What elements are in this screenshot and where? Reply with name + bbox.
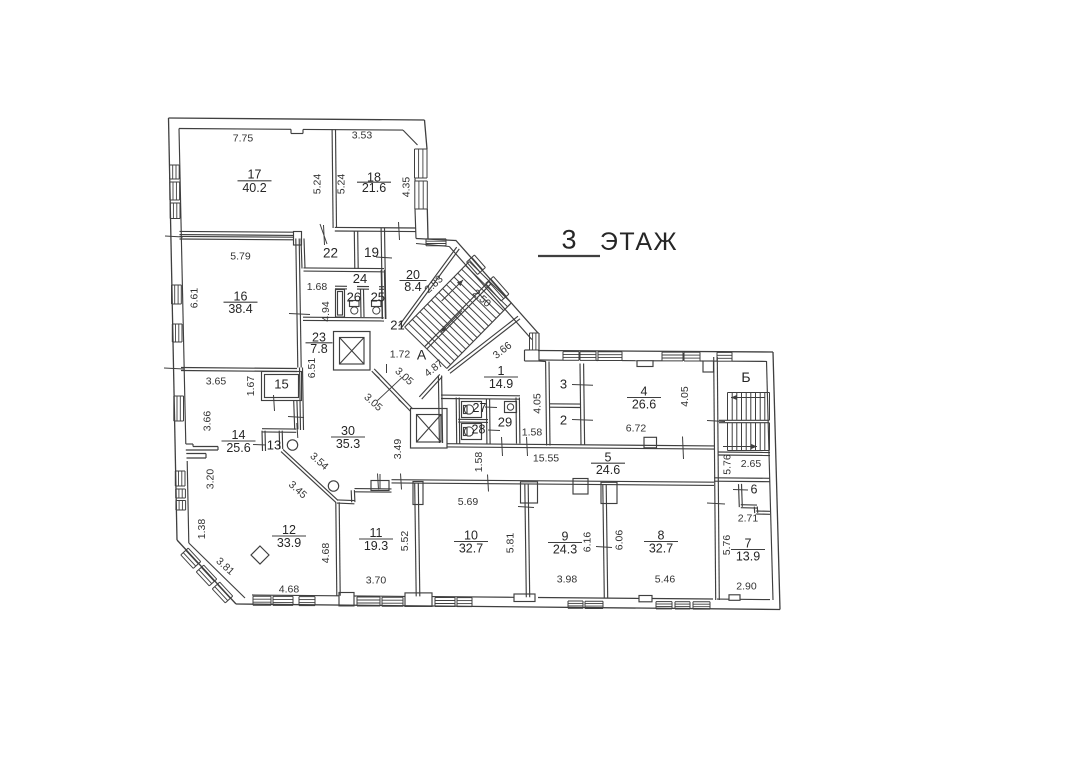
svg-text:5.76: 5.76 <box>721 535 733 556</box>
svg-text:19: 19 <box>364 245 379 260</box>
svg-text:4.05: 4.05 <box>532 393 544 414</box>
svg-text:35.3: 35.3 <box>336 437 360 451</box>
svg-text:24.6: 24.6 <box>596 463 620 477</box>
svg-text:4.94: 4.94 <box>320 301 332 322</box>
svg-text:1.58: 1.58 <box>473 452 485 473</box>
svg-text:5.46: 5.46 <box>655 574 676 586</box>
svg-text:6.61: 6.61 <box>189 288 201 309</box>
svg-text:14.9: 14.9 <box>489 377 513 391</box>
svg-text:17: 17 <box>248 167 262 181</box>
svg-text:27: 27 <box>473 401 487 415</box>
svg-text:3.70: 3.70 <box>366 575 387 587</box>
svg-text:7.8: 7.8 <box>310 342 327 356</box>
svg-text:5.76: 5.76 <box>722 454 734 475</box>
svg-text:3.98: 3.98 <box>557 574 578 586</box>
svg-text:5.81: 5.81 <box>505 533 517 554</box>
svg-text:1.58: 1.58 <box>522 427 543 439</box>
svg-text:8.4: 8.4 <box>404 280 421 294</box>
svg-text:3: 3 <box>561 224 576 254</box>
svg-text:6.16: 6.16 <box>582 532 594 553</box>
svg-text:9: 9 <box>562 529 569 543</box>
svg-text:12: 12 <box>282 523 296 537</box>
svg-text:15.55: 15.55 <box>533 453 559 465</box>
svg-text:4.68: 4.68 <box>320 543 332 564</box>
svg-text:24: 24 <box>353 271 367 286</box>
svg-text:25: 25 <box>371 290 385 305</box>
svg-text:6.06: 6.06 <box>614 530 626 551</box>
svg-text:1.38: 1.38 <box>196 519 208 540</box>
svg-text:ЭТАЖ: ЭТАЖ <box>600 228 678 256</box>
svg-text:25.6: 25.6 <box>226 441 250 455</box>
svg-text:5.24: 5.24 <box>312 174 324 195</box>
svg-text:4.05: 4.05 <box>679 386 691 407</box>
svg-text:38.4: 38.4 <box>228 302 252 316</box>
svg-text:5.79: 5.79 <box>230 251 251 263</box>
svg-text:15: 15 <box>274 377 288 392</box>
svg-text:7.75: 7.75 <box>233 133 254 145</box>
svg-text:5.52: 5.52 <box>399 531 411 552</box>
svg-text:5.24: 5.24 <box>336 174 348 195</box>
svg-text:3: 3 <box>560 377 567 392</box>
svg-text:33.9: 33.9 <box>277 536 301 550</box>
svg-text:21.6: 21.6 <box>362 181 386 195</box>
svg-text:28: 28 <box>472 422 486 436</box>
svg-text:4.68: 4.68 <box>279 584 300 596</box>
svg-text:29: 29 <box>498 415 512 430</box>
svg-text:3.66: 3.66 <box>202 411 214 432</box>
svg-text:40.2: 40.2 <box>242 181 266 195</box>
svg-text:4: 4 <box>641 384 648 398</box>
svg-text:1.72: 1.72 <box>390 349 411 361</box>
svg-text:2.71: 2.71 <box>738 513 759 525</box>
svg-text:32.7: 32.7 <box>649 541 673 555</box>
svg-text:19.3: 19.3 <box>364 539 388 553</box>
svg-text:8: 8 <box>658 528 665 542</box>
svg-text:Б: Б <box>741 369 750 385</box>
svg-text:2.65: 2.65 <box>741 458 762 470</box>
svg-text:14: 14 <box>232 428 246 442</box>
svg-text:7: 7 <box>745 536 752 550</box>
svg-text:24.3: 24.3 <box>553 542 577 556</box>
svg-text:6.51: 6.51 <box>306 358 318 379</box>
svg-text:3.49: 3.49 <box>392 439 404 460</box>
svg-text:3.20: 3.20 <box>205 469 217 490</box>
svg-text:1: 1 <box>498 364 505 378</box>
svg-text:11: 11 <box>370 526 383 540</box>
svg-text:6.72: 6.72 <box>626 423 647 435</box>
svg-text:3.65: 3.65 <box>206 376 227 388</box>
svg-text:5.69: 5.69 <box>458 496 479 508</box>
svg-text:26.6: 26.6 <box>632 397 656 411</box>
svg-text:1.67: 1.67 <box>245 376 257 397</box>
svg-text:32.7: 32.7 <box>459 541 483 555</box>
svg-text:А: А <box>417 346 427 362</box>
svg-text:26: 26 <box>347 290 361 305</box>
svg-text:4.35: 4.35 <box>401 177 413 198</box>
svg-text:13.9: 13.9 <box>736 549 760 563</box>
svg-text:1.68: 1.68 <box>307 281 328 293</box>
svg-text:2.90: 2.90 <box>736 581 757 593</box>
svg-text:21: 21 <box>390 318 404 333</box>
svg-text:13: 13 <box>267 438 281 453</box>
svg-text:2: 2 <box>560 413 567 428</box>
svg-text:30: 30 <box>341 424 355 438</box>
svg-text:6: 6 <box>751 482 758 496</box>
svg-text:22: 22 <box>323 246 338 261</box>
svg-text:3.53: 3.53 <box>352 130 373 142</box>
svg-text:10: 10 <box>464 528 478 542</box>
